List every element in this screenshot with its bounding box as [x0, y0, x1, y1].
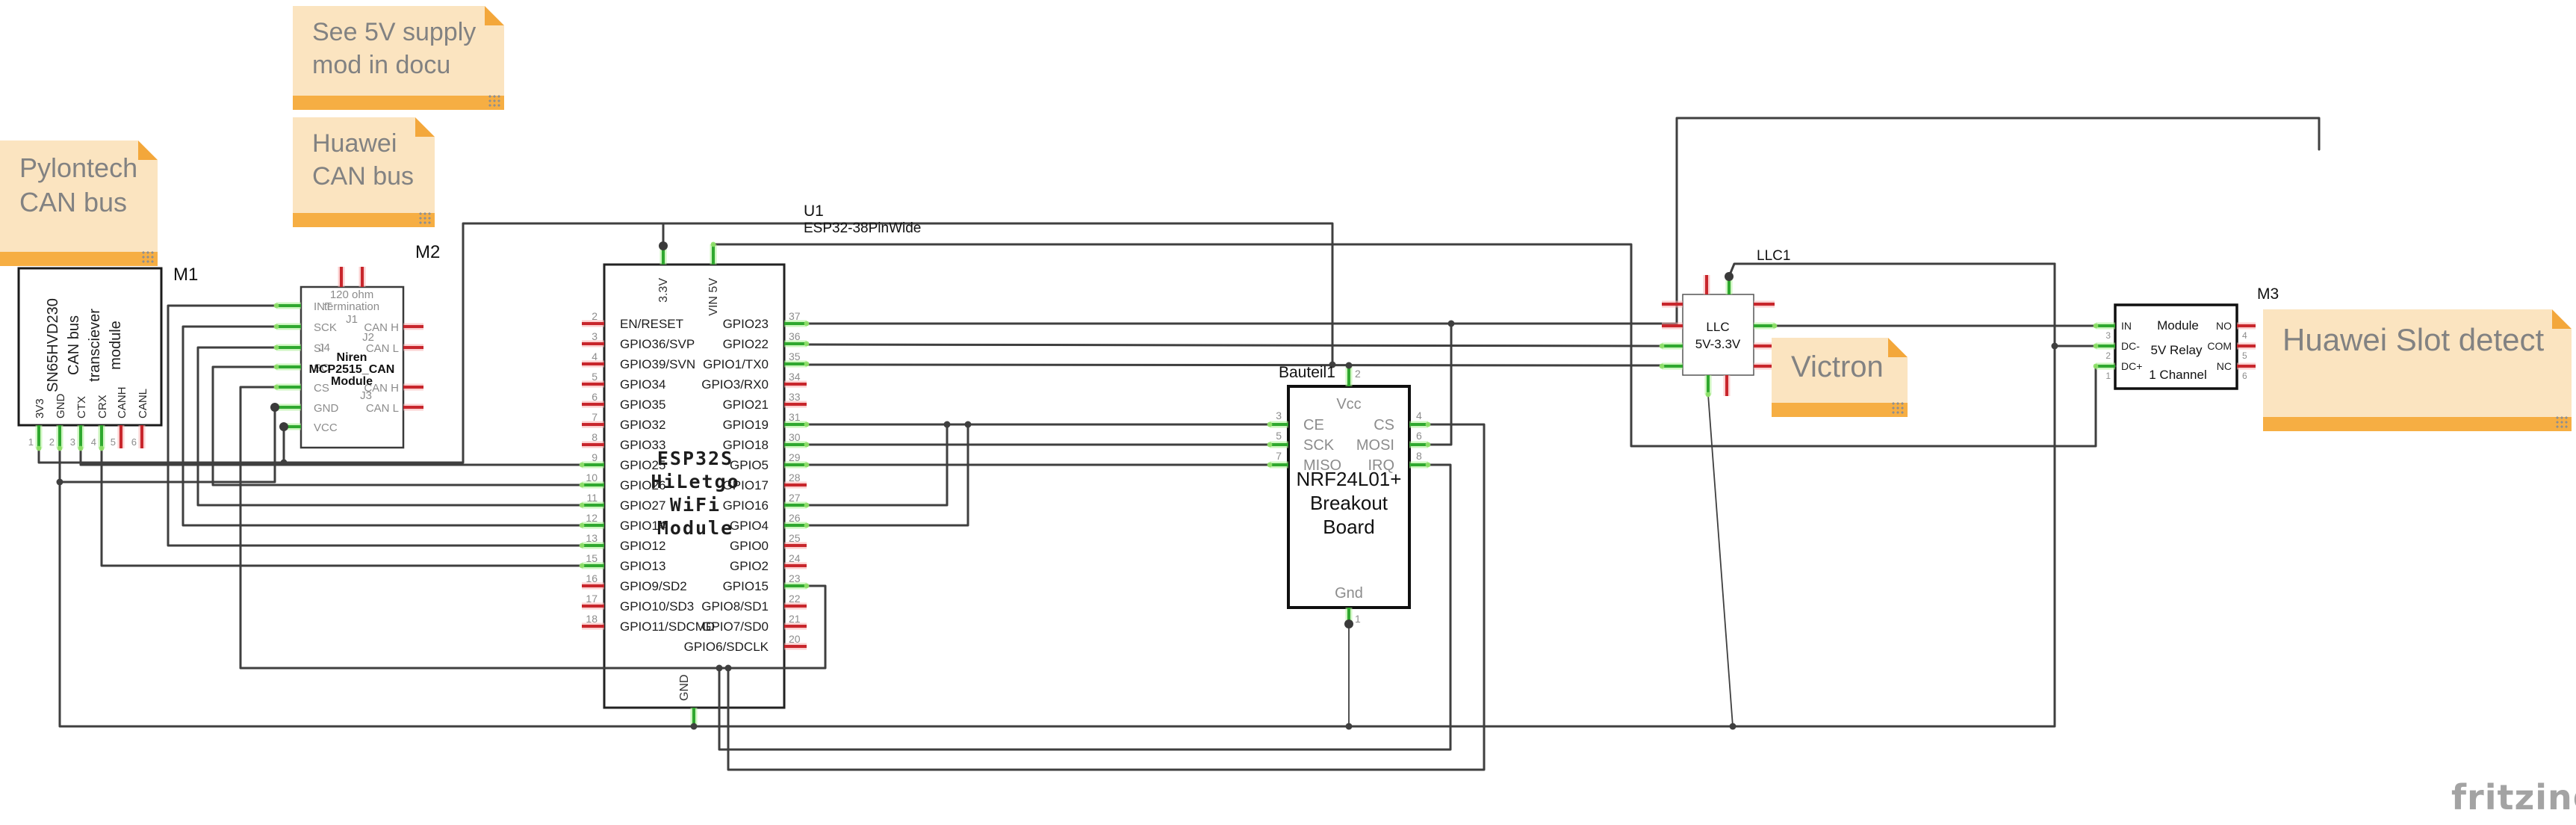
- net-m1-crx[interactable]: [102, 448, 582, 566]
- net-vcc-bus[interactable]: [807, 365, 1662, 365]
- svg-text:GPIO35: GPIO35: [620, 398, 665, 412]
- svg-text:VIN 5V: VIN 5V: [707, 278, 720, 316]
- svg-text:5: 5: [111, 436, 116, 448]
- svg-text:GPIO16: GPIO16: [723, 498, 769, 513]
- svg-text:23: 23: [789, 572, 801, 584]
- svg-text:5: 5: [1276, 430, 1282, 442]
- svg-text:SCK: SCK: [314, 321, 337, 334]
- svg-text:Module: Module: [2157, 318, 2199, 333]
- svg-text:SCK: SCK: [1303, 437, 1335, 454]
- svg-text:1: 1: [1355, 613, 1361, 625]
- svg-text:4: 4: [592, 350, 598, 362]
- svg-text:CS: CS: [314, 382, 329, 395]
- svg-text:CS: CS: [1374, 417, 1394, 433]
- svg-text:7: 7: [1276, 450, 1282, 462]
- svg-text:LLC1: LLC1: [1757, 248, 1790, 264]
- note-resize-handle-icon[interactable]: [141, 250, 154, 263]
- svg-text:module: module: [108, 321, 124, 370]
- note-huawei-slot-detect[interactable]: Huawei Slot detect: [2263, 309, 2572, 431]
- note-drag-bar[interactable]: [293, 213, 435, 227]
- svg-text:30: 30: [789, 431, 801, 443]
- net-gpio22-llc[interactable]: [807, 344, 1662, 346]
- svg-text:Board: Board: [1323, 516, 1374, 538]
- svg-text:GPIO27: GPIO27: [620, 498, 665, 513]
- svg-text:3: 3: [1276, 410, 1282, 421]
- svg-text:NRF24L01+: NRF24L01+: [1297, 468, 1402, 490]
- svg-text:21: 21: [789, 613, 801, 625]
- svg-text:4: 4: [91, 436, 96, 448]
- net-llc1-top[interactable]: [1729, 264, 2055, 276]
- svg-text:GPIO23: GPIO23: [723, 317, 769, 331]
- note-pylontech-can-bus[interactable]: PylontechCAN bus: [0, 140, 158, 266]
- svg-text:20: 20: [789, 633, 801, 645]
- svg-text:Module: Module: [331, 375, 373, 388]
- svg-text:COM: COM: [2207, 340, 2232, 352]
- svg-text:SN65HVD230: SN65HVD230: [45, 298, 61, 392]
- svg-text:GPIO13: GPIO13: [620, 559, 665, 573]
- svg-text:M2: M2: [415, 242, 440, 262]
- svg-text:22: 22: [789, 593, 801, 605]
- svg-text:Bauteil1: Bauteil1: [1279, 364, 1335, 381]
- svg-text:GPIO0: GPIO0: [730, 539, 769, 553]
- fritzing-logo: fritzing: [2451, 777, 2576, 818]
- svg-text:GPIO32: GPIO32: [620, 418, 665, 432]
- svg-text:2: 2: [1355, 368, 1361, 380]
- note-drag-bar[interactable]: [2263, 417, 2572, 431]
- svg-text:GPIO19: GPIO19: [723, 418, 769, 432]
- svg-text:8: 8: [592, 431, 598, 443]
- net-gpio23[interactable]: [807, 118, 2319, 324]
- svg-text:1: 1: [28, 436, 34, 448]
- svg-text:15: 15: [586, 552, 598, 564]
- note-resize-handle-icon[interactable]: [418, 211, 431, 224]
- svg-text:GPIO34: GPIO34: [620, 377, 665, 392]
- svg-text:6: 6: [592, 391, 598, 403]
- svg-text:GPIO15: GPIO15: [723, 579, 769, 593]
- svg-text:CAN L: CAN L: [366, 402, 399, 415]
- note-text: PylontechCAN bus: [0, 140, 158, 220]
- svg-text:J1: J1: [346, 313, 358, 326]
- note-resize-handle-icon[interactable]: [1891, 401, 1904, 414]
- svg-text:3.3V: 3.3V: [657, 278, 670, 303]
- svg-text:Niren: Niren: [337, 351, 367, 364]
- note-drag-bar[interactable]: [0, 252, 158, 266]
- svg-text:CANH: CANH: [116, 386, 128, 418]
- svg-text:18: 18: [586, 613, 598, 625]
- net-gpio4-branch[interactable]: [807, 424, 968, 525]
- svg-text:12: 12: [586, 512, 598, 524]
- note-victron[interactable]: Victron: [1772, 338, 1908, 417]
- svg-text:GPIO10/SD3: GPIO10/SD3: [620, 599, 694, 614]
- schematic-page: SN65HVD230CAN bustranscievermodule3V31GN…: [0, 0, 2576, 825]
- svg-text:36: 36: [789, 330, 801, 342]
- svg-text:8: 8: [1416, 450, 1422, 462]
- svg-text:37: 37: [789, 310, 801, 322]
- svg-text:10: 10: [586, 472, 598, 483]
- svg-text:6: 6: [1416, 430, 1422, 442]
- svg-text:U1: U1: [804, 203, 824, 220]
- svg-text:2: 2: [2105, 350, 2111, 361]
- svg-text:4: 4: [1416, 410, 1422, 421]
- svg-text:ESP32S: ESP32S: [657, 448, 733, 469]
- svg-text:6: 6: [131, 436, 137, 448]
- svg-text:GPIO4: GPIO4: [730, 519, 769, 533]
- svg-text:CRX: CRX: [96, 395, 109, 418]
- svg-text:DC-: DC-: [2121, 340, 2140, 352]
- svg-text:ESP32-38PinWide: ESP32-38PinWide: [804, 220, 921, 236]
- svg-text:NC: NC: [2217, 360, 2232, 372]
- svg-text:4: 4: [2242, 330, 2247, 341]
- svg-text:3: 3: [592, 330, 598, 342]
- svg-text:1 Channel: 1 Channel: [2149, 368, 2207, 382]
- note-huawei-can-bus[interactable]: HuaweiCAN bus: [293, 117, 435, 227]
- svg-text:1: 1: [2105, 371, 2111, 381]
- svg-text:2: 2: [49, 436, 55, 448]
- svg-text:GPIO9/SD2: GPIO9/SD2: [620, 579, 687, 593]
- svg-text:24: 24: [789, 552, 801, 564]
- svg-text:27: 27: [789, 492, 801, 504]
- svg-text:GPIO36/SVP: GPIO36/SVP: [620, 337, 695, 351]
- svg-text:GPIO7/SD0: GPIO7/SD0: [701, 619, 769, 634]
- svg-text:GPIO8/SD1: GPIO8/SD1: [701, 599, 769, 614]
- svg-text:6: 6: [2242, 371, 2247, 381]
- note-see-5v-supply[interactable]: See 5V supplymod in docu: [293, 6, 504, 110]
- svg-text:GPIO2: GPIO2: [730, 559, 769, 573]
- note-text: Huawei Slot detect: [2263, 309, 2572, 360]
- svg-text:Gnd: Gnd: [1335, 585, 1363, 602]
- svg-text:3V3: 3V3: [34, 398, 46, 418]
- svg-text:7: 7: [592, 411, 598, 423]
- note-drag-bar[interactable]: [1772, 403, 1908, 417]
- svg-text:5: 5: [592, 371, 598, 383]
- svg-text:34: 34: [789, 371, 801, 383]
- note-resize-handle-icon[interactable]: [488, 94, 500, 107]
- note-resize-handle-icon[interactable]: [2555, 415, 2568, 428]
- svg-text:GND: GND: [55, 394, 67, 419]
- note-text: Victron: [1772, 338, 1908, 386]
- svg-text:GND: GND: [678, 674, 691, 701]
- svg-text:CE: CE: [1303, 417, 1324, 433]
- svg-text:EN/RESET: EN/RESET: [620, 317, 683, 331]
- svg-text:Vcc: Vcc: [1336, 396, 1361, 412]
- svg-text:M1: M1: [173, 265, 198, 285]
- svg-text:MOSI: MOSI: [1356, 437, 1394, 454]
- svg-text:Module: Module: [657, 517, 733, 539]
- svg-text:31: 31: [789, 411, 801, 423]
- svg-text:VCC: VCC: [314, 421, 338, 434]
- svg-text:GPIO3/RX0: GPIO3/RX0: [701, 377, 769, 392]
- svg-text:GPIO12: GPIO12: [620, 539, 665, 553]
- svg-text:GPIO11/SDCMD: GPIO11/SDCMD: [620, 619, 715, 634]
- net-mosi-up[interactable]: [1428, 324, 1451, 445]
- svg-text:5: 5: [2242, 350, 2247, 361]
- svg-text:CAN bus: CAN bus: [66, 315, 82, 375]
- note-drag-bar[interactable]: [293, 96, 504, 110]
- svg-text:2: 2: [592, 310, 598, 322]
- svg-text:26: 26: [789, 512, 801, 524]
- svg-text:16: 16: [586, 572, 598, 584]
- svg-text:NO: NO: [2216, 320, 2232, 332]
- svg-text:29: 29: [789, 451, 801, 463]
- svg-text:MCP2515_CAN: MCP2515_CAN: [309, 363, 395, 376]
- svg-text:GPIO22: GPIO22: [723, 337, 769, 351]
- svg-text:CTX: CTX: [75, 396, 88, 418]
- svg-text:25: 25: [789, 532, 801, 544]
- svg-text:LLC: LLC: [1706, 320, 1729, 334]
- svg-text:GPIO39/SVN: GPIO39/SVN: [620, 357, 695, 371]
- svg-text:5V Relay: 5V Relay: [2151, 343, 2203, 357]
- svg-text:M3: M3: [2257, 285, 2279, 303]
- note-text: HuaweiCAN bus: [293, 117, 435, 193]
- svg-text:transciever: transciever: [87, 309, 103, 382]
- svg-text:17: 17: [586, 593, 598, 605]
- svg-text:GPIO21: GPIO21: [723, 398, 769, 412]
- svg-text:CANL: CANL: [137, 389, 149, 418]
- svg-text:IN: IN: [2121, 320, 2132, 332]
- net-llc-gnd-diag[interactable]: [1708, 395, 1733, 726]
- svg-text:GND: GND: [314, 402, 339, 415]
- svg-text:11: 11: [586, 492, 598, 504]
- svg-text:35: 35: [789, 350, 801, 362]
- svg-text:5V-3.3V: 5V-3.3V: [1695, 337, 1741, 351]
- note-text: See 5V supplymod in docu: [293, 6, 504, 81]
- svg-text:J2: J2: [362, 331, 374, 344]
- svg-text:GPIO6/SDCLK: GPIO6/SDCLK: [684, 640, 769, 654]
- svg-text:J4: J4: [318, 342, 330, 354]
- svg-text:DC+: DC+: [2121, 360, 2142, 372]
- svg-text:CAN L: CAN L: [366, 342, 399, 355]
- svg-text:J3: J3: [360, 389, 372, 402]
- svg-text:termination: termination: [324, 300, 379, 313]
- svg-text:28: 28: [789, 472, 801, 483]
- svg-text:9: 9: [592, 451, 598, 463]
- svg-text:3: 3: [70, 436, 75, 448]
- svg-text:HiLetgo: HiLetgo: [651, 471, 739, 492]
- svg-text:3: 3: [2105, 330, 2111, 341]
- svg-text:Breakout: Breakout: [1310, 492, 1388, 514]
- svg-text:33: 33: [789, 391, 801, 403]
- svg-text:GPIO1/TX0: GPIO1/TX0: [703, 357, 769, 371]
- svg-text:WiFi: WiFi: [670, 494, 721, 516]
- svg-text:13: 13: [586, 532, 598, 544]
- svg-text:120 ohm: 120 ohm: [330, 288, 373, 301]
